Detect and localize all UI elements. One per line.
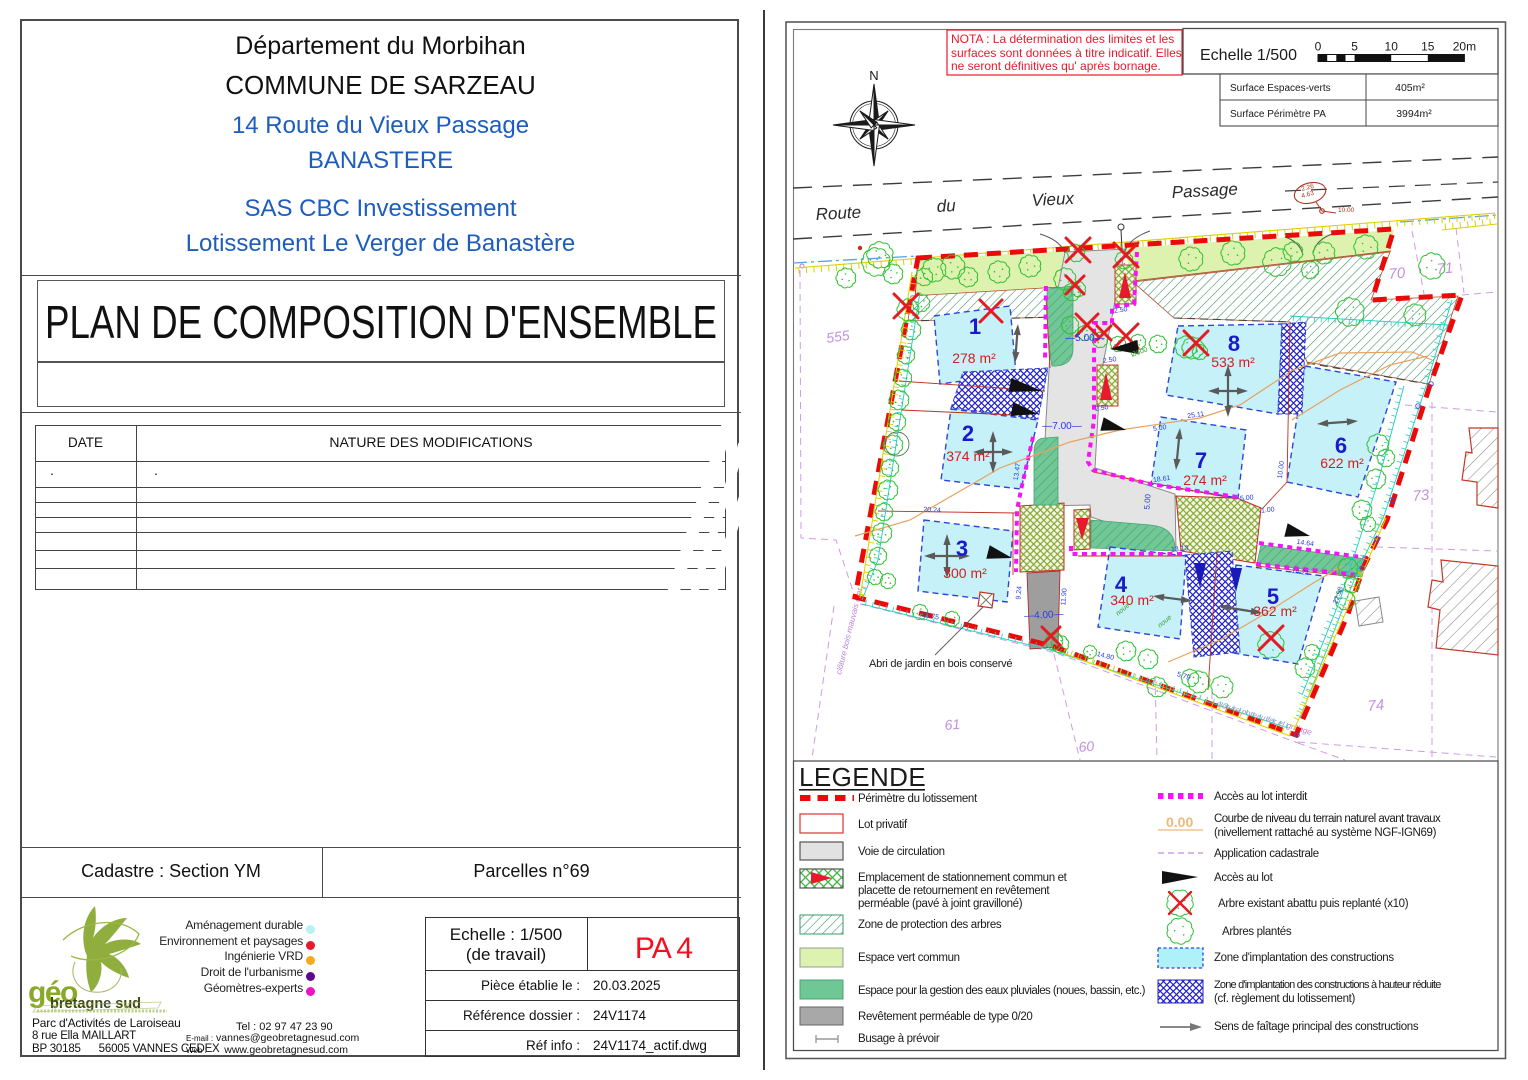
svg-text:11.90: 11.90 [1060, 588, 1068, 606]
svg-text:1: 1 [969, 314, 981, 339]
svg-text:5.79: 5.79 [1176, 671, 1191, 682]
svg-text:Busage à prévoir: Busage à prévoir [858, 1033, 940, 1045]
svg-text:3994m²: 3994m² [1396, 108, 1432, 120]
svg-text:Vieux: Vieux [1031, 189, 1075, 210]
svg-text:Lot privatif: Lot privatif [858, 819, 908, 831]
svg-text:3: 3 [956, 536, 968, 561]
svg-text:374 m²: 374 m² [946, 448, 990, 464]
svg-text:362 m²: 362 m² [1253, 603, 1297, 619]
svg-text:622 m²: 622 m² [1320, 455, 1364, 471]
svg-text:8: 8 [1228, 331, 1240, 356]
svg-text:Accès au lot: Accès au lot [1214, 872, 1274, 884]
svg-text:9.24: 9.24 [1015, 586, 1023, 600]
svg-text:2: 2 [962, 421, 974, 446]
svg-text:Zone d'implantation des constr: Zone d'implantation des constructions [1214, 952, 1394, 964]
svg-text:Application cadastrale: Application cadastrale [1214, 848, 1319, 860]
svg-text:Abri de jardin en bois conserv: Abri de jardin en bois conservé [869, 658, 1012, 670]
svg-text:73: 73 [1412, 487, 1431, 505]
svg-text:placette de retournement: placette de retournement en revêtement [858, 885, 1050, 897]
svg-text:60: 60 [1078, 738, 1095, 755]
svg-text:74: 74 [1367, 697, 1385, 715]
svg-text:(nivellement rattaché au systè: (nivellement rattaché au système NGF-IGN… [1214, 827, 1437, 839]
svg-text:5: 5 [1351, 40, 1358, 54]
svg-text:7: 7 [1195, 448, 1207, 473]
svg-text:Périmètre du lotissement: Périmètre du lotissement [858, 793, 978, 805]
svg-text:555: 555 [825, 327, 851, 346]
svg-text:533 m²: 533 m² [1211, 354, 1255, 370]
svg-text:N: N [869, 68, 878, 83]
svg-text:340 m²: 340 m² [1110, 592, 1154, 608]
svg-text:Echelle 1/500: Echelle 1/500 [1200, 47, 1297, 64]
svg-text:—5.00—: —5.00— [1065, 333, 1104, 344]
svg-text:25.11: 25.11 [1187, 411, 1205, 420]
svg-text:LEGENDE: LEGENDE [799, 762, 926, 792]
svg-text:surfaces sont données à titre: surfaces sont données à titre indicatif.… [951, 46, 1182, 60]
svg-text:ne seront définitives qu' apr: ne seront définitives qu' après bornage. [951, 59, 1161, 73]
svg-text:PLAN DE COMPOSITION D'ENSEMBLE: PLAN DE COMPOSITION D'ENSEMBLE [45, 296, 717, 348]
svg-text:15: 15 [1421, 40, 1435, 54]
svg-text:20m: 20m [1453, 40, 1476, 54]
svg-text:20.24: 20.24 [923, 507, 941, 515]
svg-text:70: 70 [1388, 265, 1407, 283]
svg-text:Revêtement perméable de type 0: Revêtement perméable de type 0/20 [858, 1011, 1032, 1023]
svg-text:Surface Espaces-verts: Surface Espaces-verts [1230, 83, 1331, 94]
svg-text:10.00: 10.00 [1338, 207, 1355, 214]
svg-text:Emplacement de stationnement: Emplacement de stationnement commun et [858, 872, 1068, 884]
svg-text:0: 0 [1315, 40, 1322, 54]
svg-text:13.13: 13.13 [1171, 545, 1189, 554]
svg-text:Passage: Passage [1171, 180, 1238, 202]
svg-text:du: du [936, 196, 956, 216]
svg-text:—4.00—: —4.00— [1024, 609, 1064, 622]
svg-text:Voie de circulation: Voie de circulation [858, 846, 945, 858]
svg-text:61: 61 [944, 716, 961, 733]
svg-text:300 m²: 300 m² [943, 565, 987, 581]
svg-text:—7.00—: —7.00— [1042, 421, 1081, 432]
svg-text:1.00: 1.00 [1261, 506, 1275, 514]
svg-text:2.50: 2.50 [1103, 356, 1118, 365]
svg-text:Surface Périmètre PA: Surface Périmètre PA [1230, 109, 1326, 120]
svg-text:Espace pour la gestion des eau: Espace pour la gestion des eaux pluviale… [858, 985, 1146, 997]
svg-text:22.98: 22.98 [1332, 586, 1345, 605]
svg-text:10: 10 [1385, 40, 1399, 54]
svg-text:274 m²: 274 m² [1183, 472, 1227, 488]
svg-text:Espace vert commun: Espace vert commun [858, 952, 960, 964]
svg-text:10.00: 10.00 [1277, 461, 1286, 479]
svg-text:perméable (pavé à joint gravil: perméable (pavé à joint gravilloné) [858, 898, 1023, 910]
svg-text:(cf. règlement du lotissement): (cf. règlement du lotissement) [1214, 993, 1355, 1005]
svg-text:Arbres plantés: Arbres plantés [1222, 926, 1292, 938]
svg-text:0.00: 0.00 [1166, 814, 1193, 830]
svg-text:5.00: 5.00 [1240, 494, 1254, 502]
svg-text:Route: Route [815, 203, 861, 224]
svg-text:Zone d'implantation des con: Zone d'implantation des constructions à … [1214, 979, 1441, 991]
svg-text:405m²: 405m² [1395, 82, 1425, 94]
svg-text:278 m²: 278 m² [952, 350, 996, 366]
svg-text:2.50: 2.50 [1095, 404, 1110, 413]
svg-text:Sens de faîtage principal des: Sens de faîtage principal des constructi… [1214, 1021, 1419, 1033]
svg-text:NOTA : La détermination des li: NOTA : La détermination des limites et l… [951, 32, 1174, 46]
svg-text:Accès au lot interdit: Accès au lot interdit [1214, 791, 1308, 803]
svg-text:2.50: 2.50 [1114, 306, 1129, 315]
svg-text:Zone de protection des arbres: Zone de protection des arbres [858, 919, 1002, 931]
svg-text:5.00: 5.00 [1142, 493, 1152, 510]
svg-text:Courbe de niveau du terrai: Courbe de niveau du terrain naturel avan… [1214, 813, 1441, 825]
svg-text:Arbre existant abattu puis rep: Arbre existant abattu puis replanté (x10… [1218, 898, 1409, 910]
